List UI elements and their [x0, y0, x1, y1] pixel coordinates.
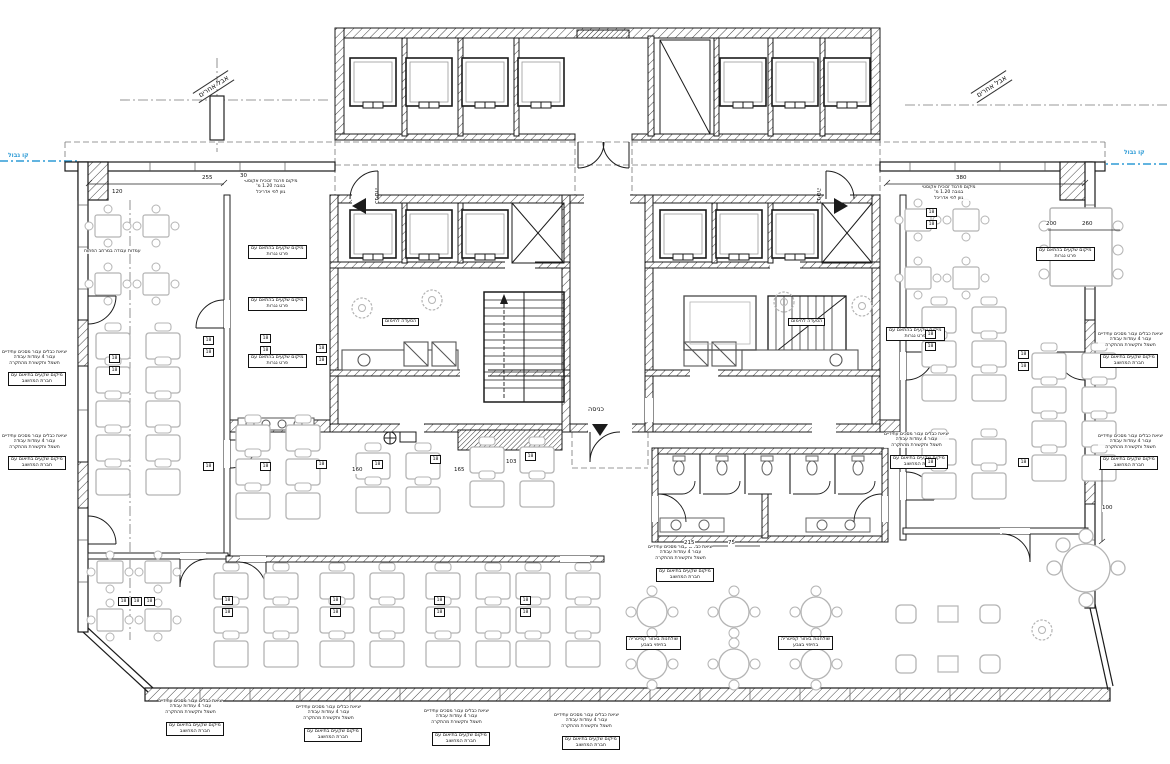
furniture: [85, 199, 1116, 690]
lounge-area: [896, 605, 1000, 673]
stairs: [484, 292, 846, 402]
elevator-car: [518, 58, 564, 108]
toilet: [716, 456, 728, 475]
elevator-car: [772, 58, 818, 108]
restrooms: [652, 448, 888, 542]
desk-cluster-right-edge: [1032, 343, 1116, 481]
plant: [352, 298, 372, 318]
elevators: [350, 40, 872, 263]
elevator-car: [406, 210, 452, 260]
plant: [852, 296, 872, 316]
elevator-car: [660, 210, 706, 260]
elevator-car: [350, 58, 396, 108]
elevator-car: [406, 58, 452, 108]
toilet: [761, 456, 773, 475]
desk-cluster-left-mid: [96, 323, 180, 495]
elevator-car: [772, 210, 818, 260]
plant: [1032, 620, 1052, 640]
electrical-symbol: [384, 432, 416, 444]
round-table-large: [1047, 529, 1125, 607]
plant: [422, 290, 442, 310]
pantry-counter-west: [342, 342, 458, 370]
stool-cluster-left-bottom: [87, 551, 181, 641]
stool-cluster-left-top: [85, 205, 179, 305]
floor-plan-canvas: קו גבולקו גבולאבל אחריםאבל אחריםכניסהכני…: [0, 0, 1170, 764]
toilet: [806, 456, 818, 475]
elevator-car: [720, 58, 766, 108]
toilet: [852, 456, 864, 475]
desk-cluster-right-mid: [922, 297, 1006, 499]
stool-cluster-right-top: [895, 199, 989, 299]
conference-table: [1039, 208, 1123, 286]
floor-plan-drawing: [0, 0, 1170, 764]
elevator-car: [350, 210, 396, 260]
elevator-car: [824, 58, 870, 108]
elevator-car: [462, 210, 508, 260]
elevator-car: [462, 58, 508, 108]
toilet: [673, 456, 685, 475]
desk-clusters-bottom-band: [214, 563, 600, 667]
cafeteria-tables: [626, 586, 842, 690]
elevator-car: [716, 210, 762, 260]
desk-cluster-center-south: [356, 437, 554, 513]
